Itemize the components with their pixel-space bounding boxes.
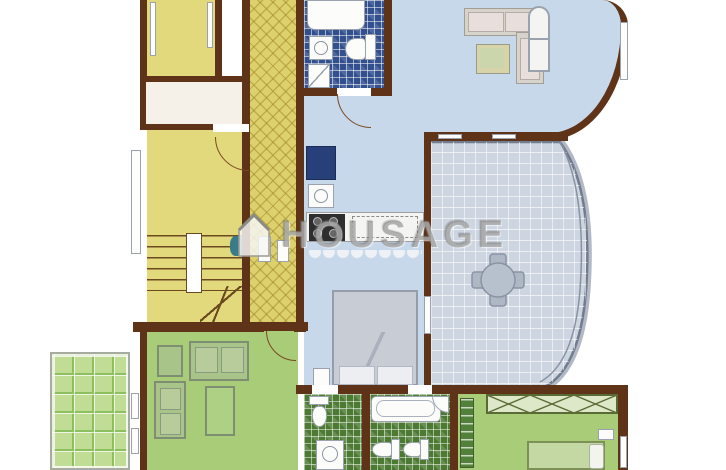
balcony-door-icon: [131, 428, 139, 454]
bidet-icon: [403, 442, 421, 457]
balcony-door-icon: [131, 393, 139, 419]
stair-winders: [200, 286, 242, 322]
pillow: [377, 366, 413, 385]
nightstand: [598, 429, 614, 440]
wall: [424, 141, 431, 394]
stair-stringer: [186, 233, 202, 293]
house-logo-icon: [236, 212, 272, 258]
door-opening: [312, 385, 338, 394]
room-corridor: [250, 0, 296, 324]
watermark-text: HOUSAGE: [281, 214, 508, 257]
shelf-rack: [460, 398, 474, 468]
wall: [140, 0, 147, 80]
window-icon: [620, 436, 627, 468]
window-icon: [150, 2, 156, 56]
window-icon: [131, 150, 141, 254]
room-closet: [140, 76, 252, 130]
sink-icon: [316, 440, 344, 470]
wall: [296, 0, 304, 331]
table: [476, 44, 510, 74]
wall: [296, 385, 628, 394]
window-icon: [424, 296, 431, 334]
wall: [215, 0, 222, 76]
toilet-tank: [309, 396, 329, 405]
sofa-cushion: [468, 12, 504, 32]
winter-garden: [420, 130, 605, 398]
bathtub-icon: [307, 0, 365, 30]
door-opening: [213, 124, 249, 132]
room-bedroom-top-left: [147, 0, 215, 76]
wall: [450, 394, 458, 470]
wall: [140, 331, 147, 470]
wall: [133, 324, 264, 332]
wall: [362, 394, 370, 470]
door-arc: [337, 94, 371, 128]
toilet-icon: [372, 442, 392, 457]
wall: [384, 0, 392, 92]
watermark: HOUSAGE: [236, 212, 508, 258]
armchair: [154, 381, 186, 439]
fridge-icon: [306, 146, 336, 180]
coffee-table: [205, 386, 235, 436]
window-icon: [438, 134, 462, 139]
arched-window-icon: [528, 6, 550, 72]
bathtub-icon: [371, 396, 441, 422]
toilet-tank: [365, 34, 376, 60]
kitchen-sink-icon: [308, 184, 334, 208]
bidet-tank: [420, 439, 429, 460]
ottoman: [157, 345, 183, 377]
sink-icon: [309, 36, 333, 60]
door-opening: [408, 385, 432, 394]
floor-plan: HOUSAGE: [0, 0, 726, 470]
toilet-icon: [345, 38, 366, 60]
pillow: [339, 366, 375, 385]
door-arc: [215, 137, 249, 171]
window-icon: [620, 22, 628, 80]
washing-machine-icon: [308, 64, 330, 88]
window-icon: [492, 134, 516, 139]
sofa: [189, 341, 249, 381]
toilet-icon: [312, 406, 327, 427]
door-arc: [266, 331, 296, 361]
room-balcony: [50, 352, 130, 470]
toilet-tank: [391, 439, 400, 460]
wardrobe: [486, 394, 618, 414]
pillow: [589, 444, 604, 469]
window-icon: [207, 2, 213, 48]
